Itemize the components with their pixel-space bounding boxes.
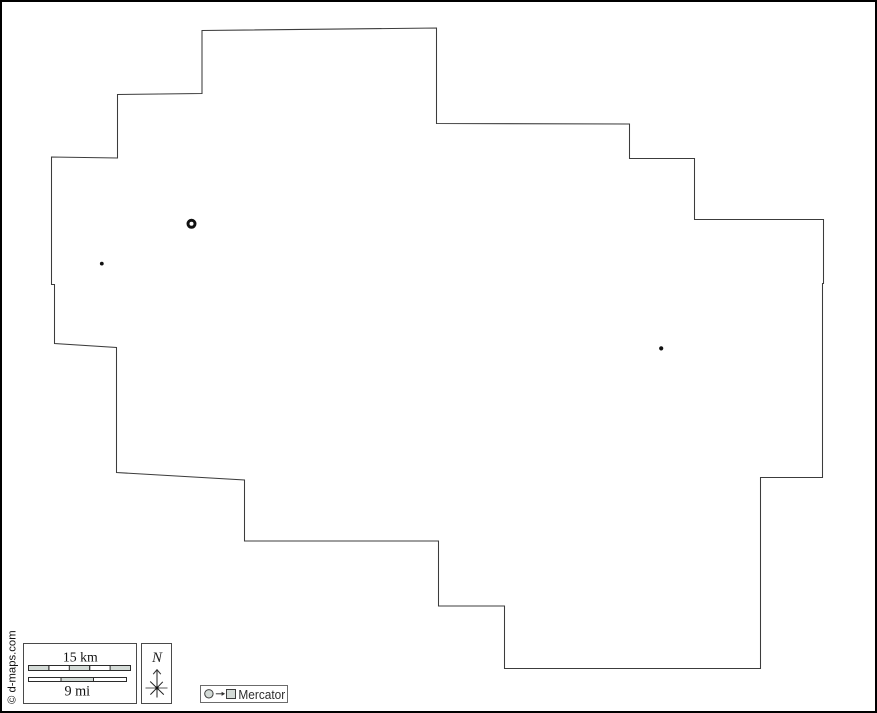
svg-text:9 mi: 9 mi	[64, 683, 90, 699]
svg-text:N: N	[151, 650, 163, 666]
svg-text:© d-maps.com: © d-maps.com	[7, 630, 19, 704]
svg-text:Mercator: Mercator	[238, 688, 285, 702]
svg-text:15 km: 15 km	[63, 649, 98, 664]
